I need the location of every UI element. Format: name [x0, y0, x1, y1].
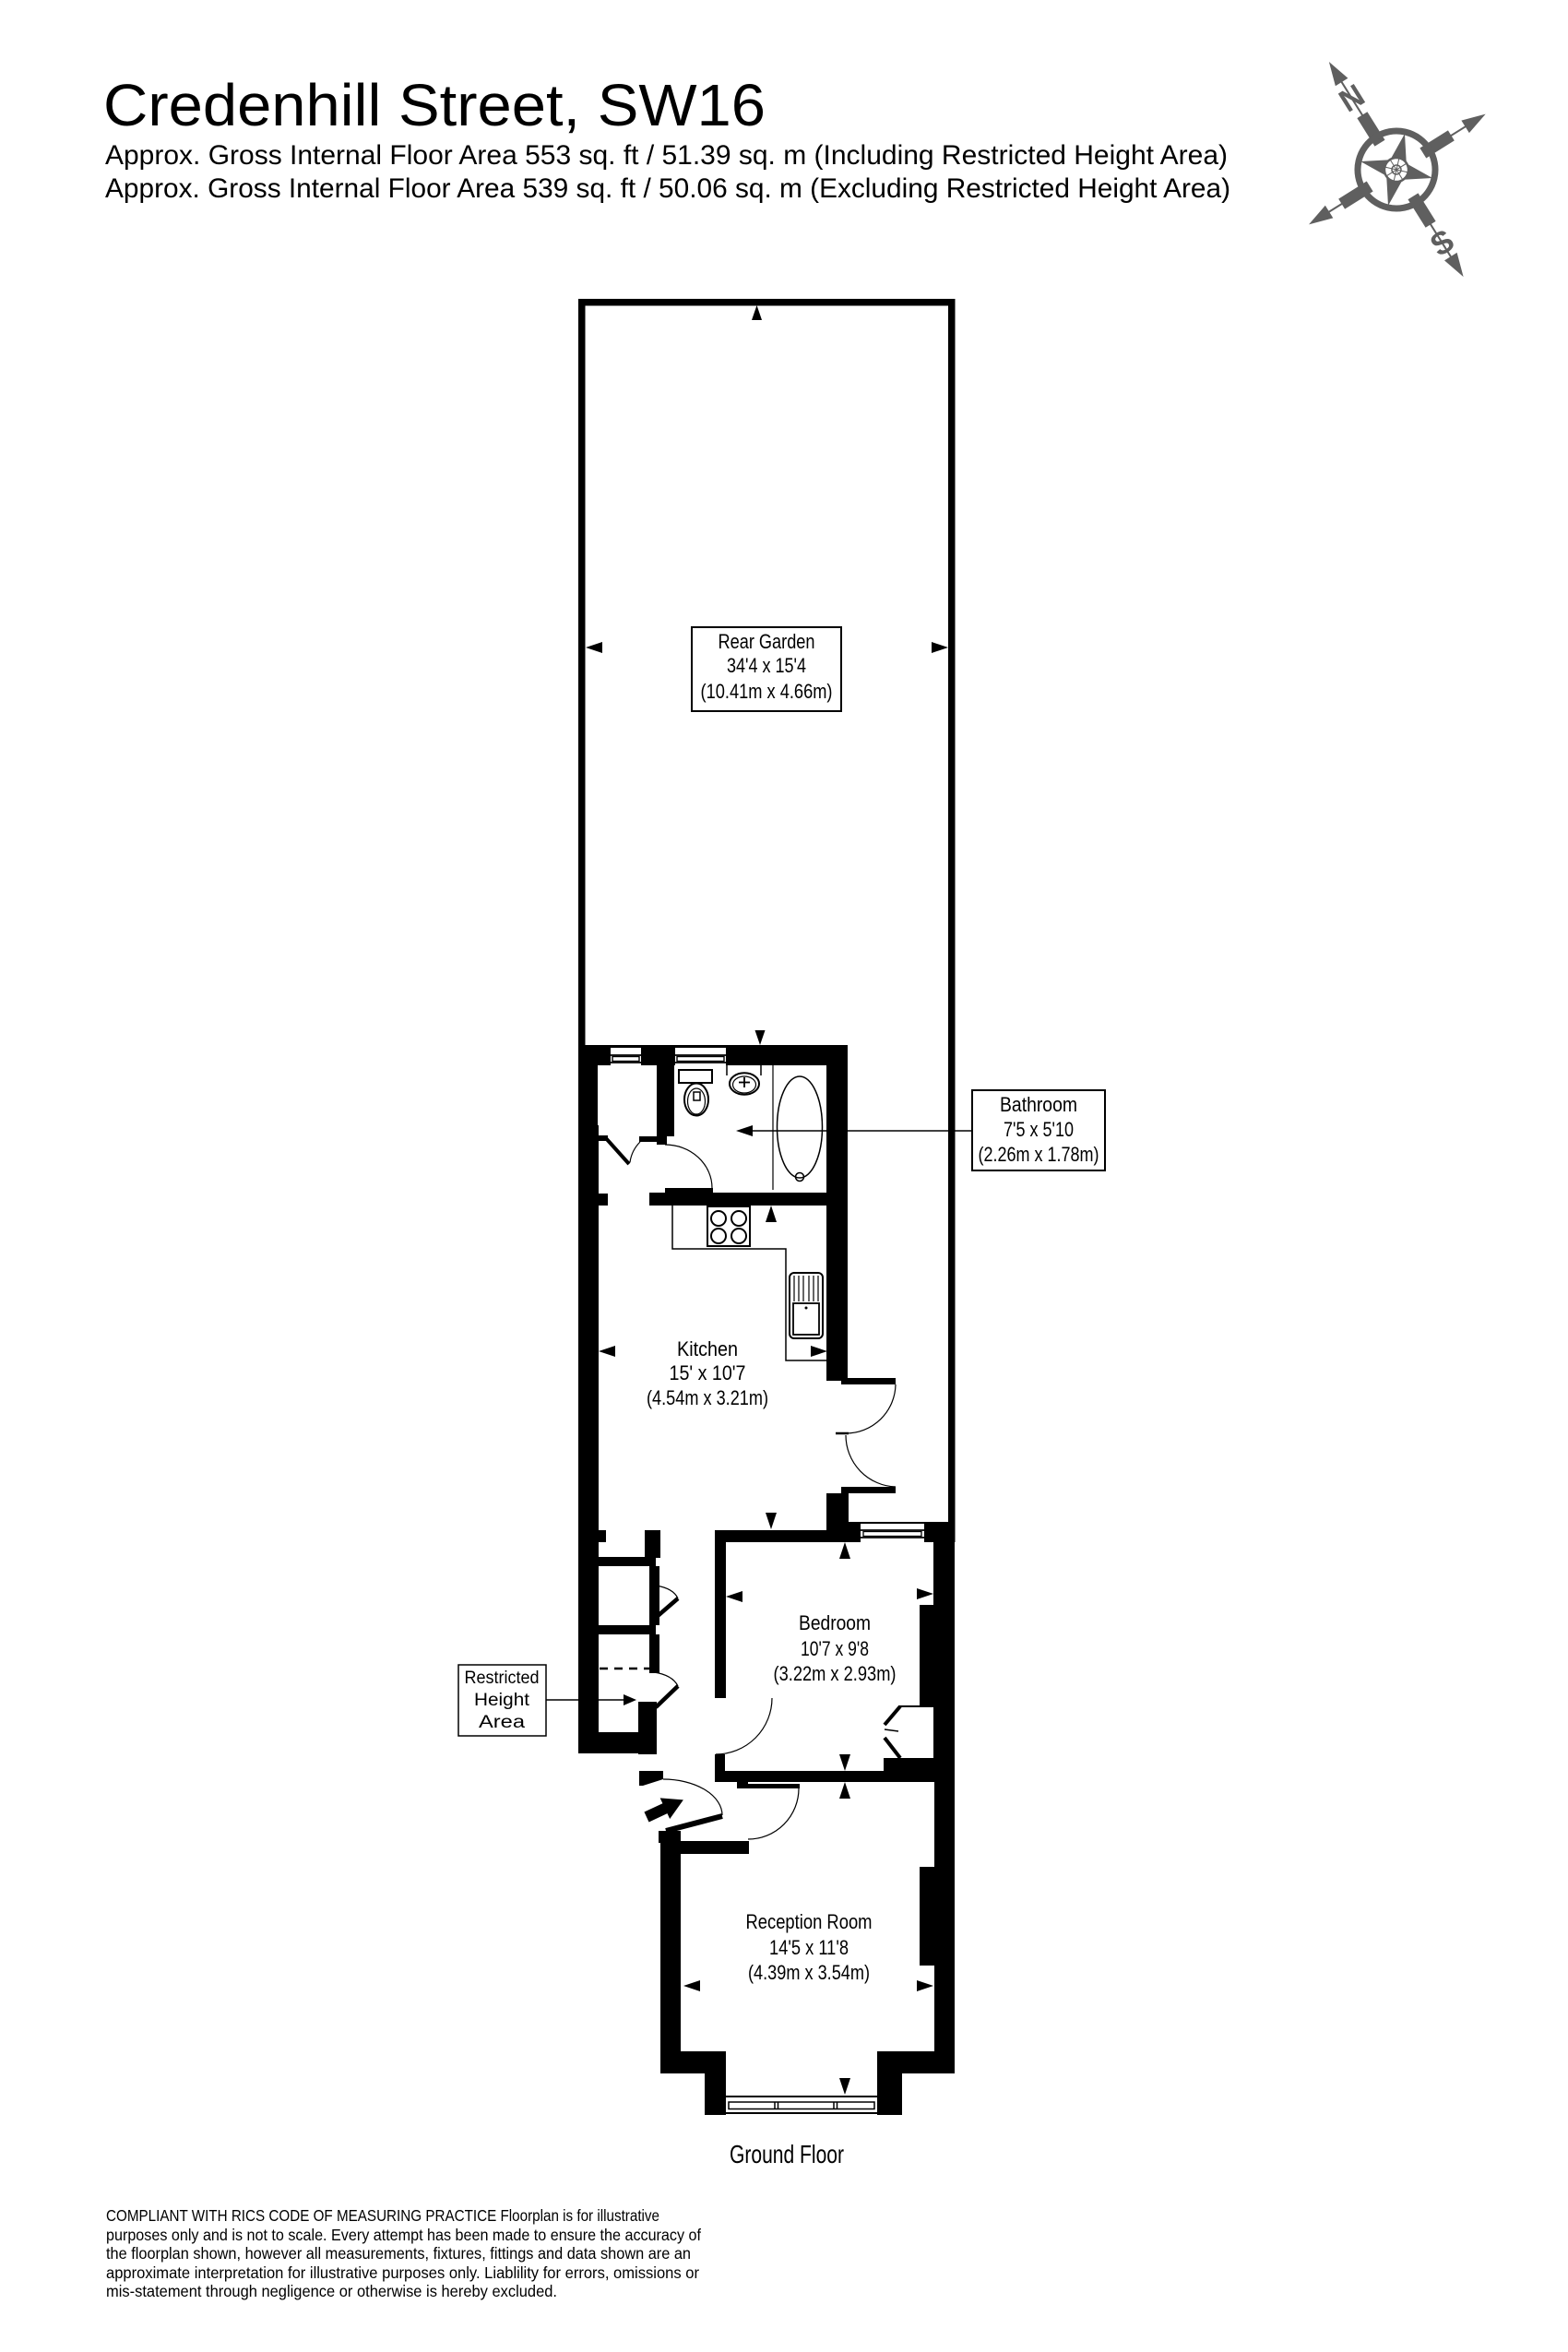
svg-text:Approx. Gross Internal Floor A: Approx. Gross Internal Floor Area 539 sq…: [105, 173, 1230, 204]
svg-text:(10.41m x 4.66m): (10.41m x 4.66m): [701, 680, 833, 703]
svg-text:34'4 x 15'4: 34'4 x 15'4: [727, 654, 806, 677]
svg-text:Approx. Gross Internal Floor A: Approx. Gross Internal Floor Area 553 sq…: [105, 140, 1228, 171]
svg-text:Credenhill Street, SW16: Credenhill Street, SW16: [103, 72, 766, 138]
svg-text:(4.39m x 3.54m): (4.39m x 3.54m): [748, 1961, 870, 1984]
svg-text:Kitchen: Kitchen: [677, 1337, 738, 1360]
svg-text:Height: Height: [474, 1691, 530, 1710]
svg-text:(3.22m x 2.93m): (3.22m x 2.93m): [774, 1662, 897, 1685]
svg-text:Restricted: Restricted: [465, 1669, 540, 1688]
svg-text:15' x 10'7: 15' x 10'7: [670, 1361, 746, 1384]
svg-text:COMPLIANT WITH RICS CODE OF ME: COMPLIANT WITH RICS CODE OF MEASURING PR…: [106, 2206, 659, 2225]
svg-text:(2.26m x 1.78m): (2.26m x 1.78m): [979, 1143, 1099, 1166]
svg-text:Reception Room: Reception Room: [746, 1910, 873, 1933]
svg-text:Area: Area: [479, 1713, 526, 1732]
svg-text:Bedroom: Bedroom: [799, 1611, 871, 1634]
svg-text:Ground Floor: Ground Floor: [730, 2140, 844, 2168]
svg-text:Rear Garden: Rear Garden: [719, 630, 815, 653]
svg-text:purposes only and is not to sc: purposes only and is not to scale. Every…: [106, 2226, 701, 2244]
svg-text:7'5 x 5'10: 7'5 x 5'10: [1004, 1118, 1074, 1141]
svg-text:10'7 x 9'8: 10'7 x 9'8: [801, 1637, 869, 1660]
svg-text:(4.54m x 3.21m): (4.54m x 3.21m): [647, 1386, 768, 1409]
svg-text:14'5 x 11'8: 14'5 x 11'8: [769, 1936, 849, 1959]
svg-text:mis-statement through negligen: mis-statement through negligence or othe…: [106, 2282, 557, 2300]
svg-text:Bathroom: Bathroom: [1000, 1093, 1077, 1116]
svg-text:the floorplan shown, however a: the floorplan shown, however all measure…: [106, 2244, 691, 2263]
svg-text:approximate interpretation for: approximate interpretation for illustrat…: [106, 2263, 699, 2282]
